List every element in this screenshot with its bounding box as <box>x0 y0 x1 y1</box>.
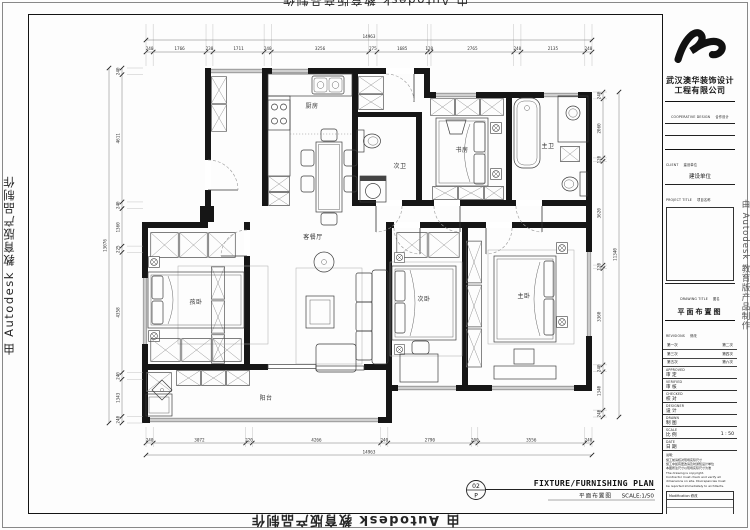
project-title-box <box>666 207 734 281</box>
svg-text:240: 240 <box>597 409 603 417</box>
company-logo <box>663 14 737 76</box>
client-row: CLIENT 建设单位 建设单位 <box>663 150 737 184</box>
revisions-label: REVISIONS 修改 <box>663 321 737 342</box>
room-label-kids-bedroom: 孩卧 <box>189 298 202 306</box>
revision-row: 第一次 第二次 <box>663 342 737 351</box>
balcony-fixtures <box>146 370 249 416</box>
floor-plan-drawing: 厨房 次卫 书房 主卫 客餐厅 孩卧 次卧 主卧 阳台 240176623017… <box>0 0 750 530</box>
approval-row: DRAWN制 图 <box>663 415 737 427</box>
svg-text:2060: 2060 <box>597 123 603 134</box>
svg-text:2765: 2765 <box>467 46 478 52</box>
footer-title-cn: 平面布置图 <box>579 492 612 500</box>
notes-block: 说明： 施工前请核对现场实际尺寸 施工中如有更改请及时通知设计单位 本图所注尺寸… <box>663 451 737 490</box>
svg-text:4611: 4611 <box>116 133 122 144</box>
svg-text:240: 240 <box>585 438 593 444</box>
walls-layer <box>142 68 592 423</box>
svg-text:2135: 2135 <box>548 46 559 52</box>
aohua-logo-icon <box>671 26 729 68</box>
svg-text:240: 240 <box>116 201 122 209</box>
svg-text:1340: 1340 <box>597 385 603 396</box>
svg-text:240: 240 <box>116 415 122 423</box>
doors-layer <box>208 74 542 256</box>
svg-text:13076: 13076 <box>103 239 109 252</box>
svg-text:3256: 3256 <box>315 46 326 52</box>
svg-text:1766: 1766 <box>174 46 185 52</box>
living-room-furniture <box>211 252 388 372</box>
svg-text:275: 275 <box>369 46 377 52</box>
svg-text:240: 240 <box>597 91 603 99</box>
svg-text:240: 240 <box>116 372 122 380</box>
room-label-second-bedroom: 次卧 <box>417 295 430 303</box>
svg-text:240: 240 <box>585 46 593 52</box>
svg-text:1685: 1685 <box>397 46 408 52</box>
room-label-study: 书房 <box>455 146 468 154</box>
dimension-chain-left: 240461124013602254358240134324013076 <box>103 66 144 425</box>
footer-scale: SCALE:1/50 <box>622 494 655 500</box>
svg-text:3072: 3072 <box>194 438 205 444</box>
room-label-guest-bath: 次卫 <box>393 162 406 170</box>
svg-text:220: 220 <box>245 438 253 444</box>
project-title-label: PROJECT TITLE 项目名称 <box>663 185 737 206</box>
room-label-master-bath: 主卫 <box>541 142 554 150</box>
client-value: 建设单位 <box>666 170 734 183</box>
approval-row: APPROVED审 定 <box>663 367 737 379</box>
svg-text:240: 240 <box>380 438 388 444</box>
company-name-line1: 武汉澳华装饰设计 <box>663 76 737 86</box>
svg-text:240: 240 <box>513 46 521 52</box>
svg-text:1360: 1360 <box>116 222 122 233</box>
room-label-living-dining: 客餐厅 <box>303 233 323 241</box>
detail-bubble-sheet: P <box>474 493 478 500</box>
dimension-lines: 2401766230171124032562751685120276524021… <box>103 24 622 457</box>
room-label-balcony: 阳台 <box>259 394 272 402</box>
company-name: 武汉澳华装饰设计 工程有限公司 <box>663 76 737 97</box>
dimension-chain-bottom: 240307222042662402790200355624014963 <box>144 427 594 457</box>
guest-bath-fixtures <box>357 130 386 202</box>
room-label-master-bedroom: 主卧 <box>517 292 530 300</box>
drawing-footer: 02 P FIXTURE/FURNISHING PLAN 平面布置图 SCALE… <box>467 478 656 500</box>
svg-text:240: 240 <box>264 46 272 52</box>
svg-text:14963: 14963 <box>363 450 376 456</box>
cooperative-design-row: COOPERATIVE DESIGN 合作设计 <box>663 102 737 123</box>
approval-row: CHECKED校 对 <box>663 391 737 403</box>
svg-text:1711: 1711 <box>233 46 244 52</box>
svg-text:3556: 3556 <box>526 438 537 444</box>
approval-row: DATE日 期 <box>663 439 737 451</box>
svg-text:2790: 2790 <box>425 438 436 444</box>
svg-text:120: 120 <box>425 46 433 52</box>
revision-row: 第五次 第六次 <box>663 359 737 368</box>
company-name-line2: 工程有限公司 <box>663 86 737 96</box>
second-bedroom-furniture <box>390 233 462 382</box>
footer-title-en: FIXTURE/FURNISHING PLAN <box>534 478 654 488</box>
svg-text:240: 240 <box>146 438 154 444</box>
drawing-title-value: 平面布置图 <box>663 305 737 320</box>
svg-text:120: 120 <box>597 155 603 163</box>
svg-text:120: 120 <box>597 263 603 271</box>
svg-text:4358: 4358 <box>116 307 122 318</box>
svg-text:230: 230 <box>206 46 214 52</box>
approval-row: DESIGNER设 计 <box>663 403 737 415</box>
approval-rows: APPROVED审 定VERIFIED审 核CHECKED校 对DESIGNER… <box>663 367 737 451</box>
svg-text:240: 240 <box>116 67 122 75</box>
svg-text:1343: 1343 <box>116 392 122 403</box>
svg-text:200: 200 <box>471 438 479 444</box>
svg-text:4266: 4266 <box>311 438 322 444</box>
svg-text:11340: 11340 <box>613 248 619 261</box>
svg-text:240: 240 <box>597 364 603 372</box>
svg-text:3360: 3360 <box>597 311 603 322</box>
svg-text:14963: 14963 <box>363 34 376 40</box>
revision-row: 第三次 第四次 <box>663 350 737 359</box>
dimension-chain-right: 240206012036201203360240134024011340 <box>593 90 621 419</box>
svg-text:240: 240 <box>146 46 154 52</box>
room-label-kitchen: 厨房 <box>305 102 318 110</box>
approval-row: VERIFIED审 核 <box>663 379 737 391</box>
detail-bubble-number: 02 <box>472 483 480 490</box>
modification-table: Modification 修改 <box>666 491 734 514</box>
dimension-chain-top: 2401766230171124032562751685120276524021… <box>144 24 594 66</box>
svg-text:225: 225 <box>116 245 122 253</box>
approval-row: SCALE比 例1 : 50 <box>663 427 737 439</box>
dining-furniture <box>301 129 357 225</box>
master-bedroom-furniture <box>466 241 574 379</box>
drawing-title-label: DRAWING TITLE 图名 <box>663 284 737 305</box>
drawing-sheet: 由 Autodesk 教育版产品制作 由 Autodesk 教育版产品制作 由 … <box>0 0 750 530</box>
svg-text:3620: 3620 <box>597 208 603 219</box>
title-block: 武汉澳华装饰设计 工程有限公司 COOPERATIVE DESIGN 合作设计 … <box>662 14 737 514</box>
